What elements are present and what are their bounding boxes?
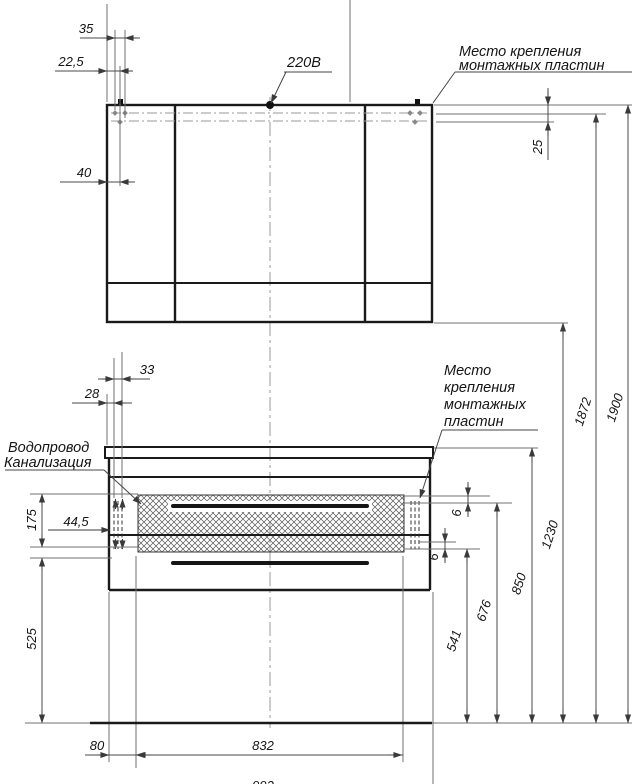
dim-175: 175 <box>24 494 42 547</box>
dim-1900: 1900 <box>603 105 628 723</box>
dim-40: 40 <box>60 165 135 182</box>
dim-80: 80 <box>90 738 148 755</box>
dim-35: 35 <box>79 21 140 38</box>
dim-22-5: 22,5 <box>55 54 133 71</box>
mounting-plates-bottom-line3: монтажных <box>444 397 527 413</box>
mounting-plates-top-line2: монтажных пластин <box>459 58 604 74</box>
dim-525: 525 <box>24 558 42 723</box>
dim-676-label: 676 <box>473 597 494 623</box>
mounting-holes <box>112 110 423 125</box>
countertop <box>105 447 433 458</box>
vanity-cabinet-front-view <box>105 447 433 590</box>
dim-40-label: 40 <box>77 165 92 180</box>
dim-992-label: 992 <box>252 778 274 784</box>
mounting-plates-bottom-line1: Место <box>444 363 491 379</box>
dim-1900-label: 1900 <box>603 391 626 424</box>
upper-extension-lines <box>107 0 632 186</box>
dim-28-label: 28 <box>84 386 100 401</box>
mounting-plates-bottom-line4: пластин <box>444 414 504 430</box>
power-label: 220В <box>286 55 321 71</box>
dim-676: 676 <box>473 503 497 723</box>
width-dimensions: 80 832 992 <box>85 738 403 784</box>
dim-28: 28 <box>72 386 132 403</box>
dim-1230-label: 1230 <box>538 518 561 551</box>
mounting-plates-bottom-line2: крепления <box>444 380 515 396</box>
dim-832: 832 <box>137 738 402 755</box>
dim-1872: 1872 <box>571 114 596 723</box>
dim-1230: 1230 <box>538 323 563 723</box>
lower-drawer-handle <box>171 561 369 565</box>
dim-44-5: 44,5 <box>48 514 110 530</box>
dim-80-label: 80 <box>90 738 105 753</box>
dim-525-label: 525 <box>24 627 39 649</box>
mounting-plates-callout-bottom: Место крепления монтажных пластин <box>420 363 538 498</box>
dim-832-label: 832 <box>252 738 274 753</box>
power-callout: 220В <box>266 55 332 109</box>
dim-175-label: 175 <box>24 508 39 530</box>
dim-850: 850 <box>508 448 532 723</box>
dim-22-5-label: 22,5 <box>57 54 84 69</box>
dim-6-upper-label: 6 <box>449 509 464 517</box>
power-point-dot <box>266 101 274 109</box>
plate-extent-marks <box>116 499 123 549</box>
dim-992-cropped: 992 <box>252 778 274 784</box>
dim-25-label: 25 <box>530 139 545 155</box>
dim-541-label: 541 <box>443 628 464 653</box>
dim-35-label: 35 <box>79 21 94 36</box>
dim-33-label: 33 <box>140 362 155 377</box>
mounting-plate-right <box>411 501 419 549</box>
dim-6-upper: 6 <box>449 482 468 517</box>
upper-drawer-handle <box>171 504 369 508</box>
mounting-plates-callout-top: Место крепления монтажных пластин <box>433 44 632 103</box>
sewerage-label: Канализация <box>4 455 92 471</box>
dim-1872-label: 1872 <box>571 395 594 428</box>
installation-drawing: 35 22,5 40 25 220В Место крепления монта… <box>0 0 632 784</box>
dim-6-lower-label: 6 <box>426 553 441 561</box>
dim-25: 25 <box>530 88 548 160</box>
dim-33: 33 <box>98 362 155 379</box>
technical-drawing-page: 35 22,5 40 25 220В Место крепления монта… <box>0 0 632 784</box>
dim-541: 541 <box>443 549 467 723</box>
dim-44-5-label: 44,5 <box>63 514 89 529</box>
water-supply-label: Водопровод <box>8 440 89 456</box>
dim-850-label: 850 <box>508 570 529 596</box>
fastener-mark-right <box>415 99 420 104</box>
